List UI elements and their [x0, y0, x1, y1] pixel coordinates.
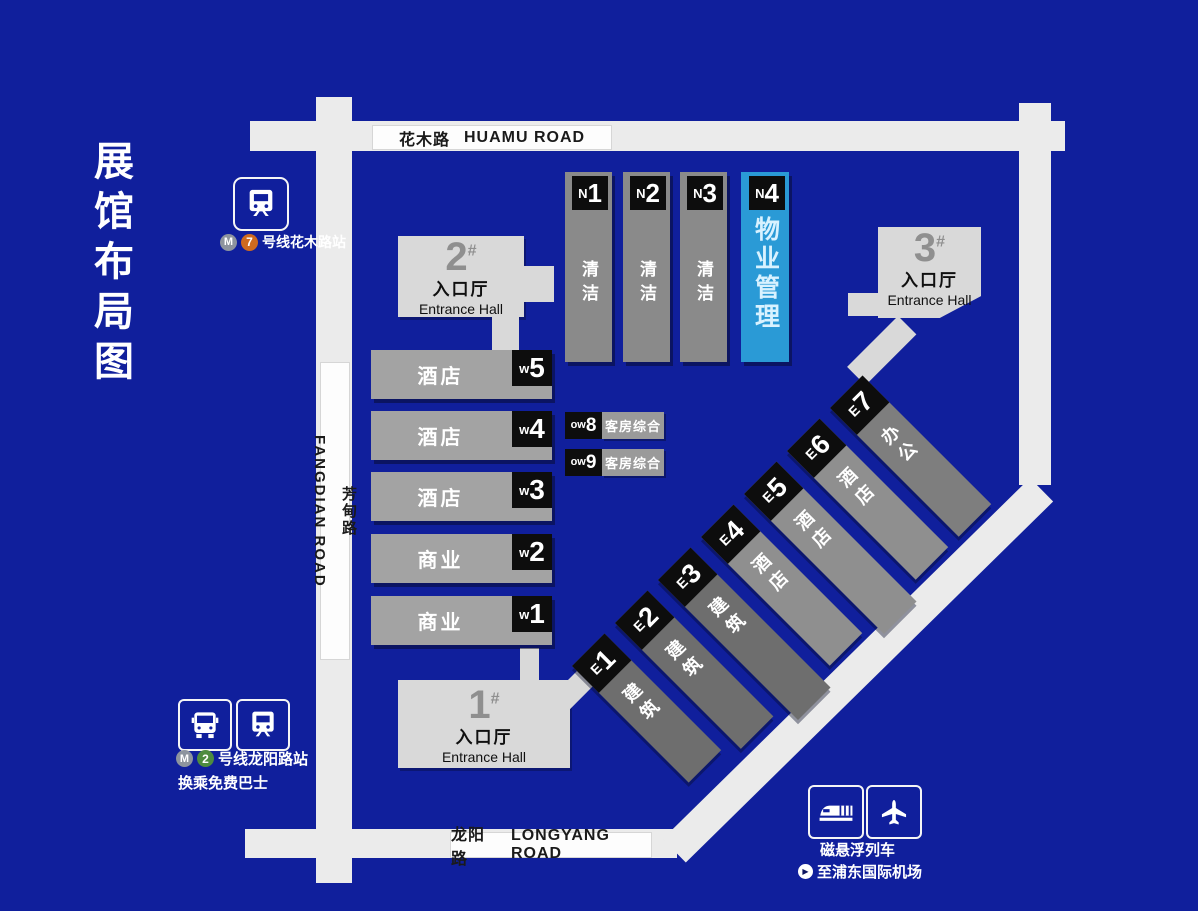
hall-w3-tag: w3	[512, 472, 552, 508]
maglev-destination-caption: ▶ 至浦东国际机场	[798, 861, 922, 882]
hall-w4-use: 酒店	[418, 421, 506, 450]
hall-w4: 酒店 w4	[371, 411, 552, 460]
hall-n4-highlighted: N4 物业管理	[741, 172, 789, 362]
entrance-3-number: 3#	[914, 231, 945, 265]
hall-n4-use: 物业管理	[753, 216, 778, 332]
line7-station-name: 号线花木路站	[262, 232, 346, 252]
entrance-2-zh: 入口厅	[433, 275, 490, 300]
train-icon-box	[236, 699, 290, 751]
exhibition-layout-map: 展馆布局图 花木路 HUAMU ROAD 芳甸路 FANGDIAN ROAD 龙…	[0, 0, 1198, 911]
hall-e1-use: 建筑	[619, 680, 666, 727]
airplane-icon-box	[866, 785, 922, 839]
hall-e2-use: 建筑	[662, 637, 709, 684]
entrance-hall-1-label: 1# 入口厅 Entrance Hall	[398, 688, 570, 765]
huamu-road-en: HUAMU ROAD	[464, 129, 585, 147]
hall-e4-use: 酒店	[748, 551, 795, 598]
hall-w2: 商业 w2	[371, 534, 552, 583]
hall-ow8-use: 客房综合	[602, 412, 664, 439]
metro-station-icon-box	[233, 177, 289, 231]
maglev-icon-box	[808, 785, 864, 839]
right-perimeter-road	[1019, 103, 1051, 485]
hall-n2: N2 清洁	[623, 172, 670, 362]
hall-e7-tag: E7	[830, 375, 889, 434]
hall-w5: 酒店 w5	[371, 350, 552, 399]
huamu-road-zh: 花木路	[399, 126, 450, 150]
bus-icon-box	[178, 699, 232, 751]
maglev-train-icon	[816, 797, 856, 827]
line7-badge: 7	[241, 234, 258, 251]
fangdian-road-label: 芳甸路 FANGDIAN ROAD	[320, 362, 350, 660]
hall-n1: N1 清洁	[565, 172, 612, 362]
entrance-2-en: Entrance Hall	[419, 301, 503, 317]
entrance-1-number: 1#	[468, 688, 499, 722]
entrance-2-number: 2#	[445, 240, 476, 274]
fangdian-road-en: FANGDIAN ROAD	[311, 435, 328, 588]
fangdian-road-zh: 芳甸路	[338, 486, 359, 537]
line2-badge: 2	[197, 750, 214, 767]
entrance-1-zh: 入口厅	[456, 723, 513, 748]
hall-n3-tag: N3	[687, 176, 723, 210]
hall-w1-use: 商业	[418, 606, 506, 635]
hall-w1-tag: w1	[512, 596, 552, 632]
shanghai-metro-logo-icon: M	[220, 234, 237, 251]
hall-n2-tag: N2	[630, 176, 666, 210]
free-shuttle-note: 换乘免费巴士	[178, 772, 268, 793]
hall-w5-tag: w5	[512, 350, 552, 386]
bus-icon	[189, 708, 221, 742]
line2-station-name: 号线龙阳路站	[218, 748, 308, 769]
longyang-road-en: LONGYANG ROAD	[511, 827, 651, 863]
hall-e7-use: 办公	[877, 422, 924, 469]
hall-n1-use: 清洁	[580, 260, 597, 308]
entrance-hall-3-arm	[848, 293, 878, 316]
line7-station-caption: M 7 号线花木路站	[220, 232, 346, 252]
hall-e3-use: 建筑	[705, 594, 752, 641]
hall-e2-tag: E2	[615, 590, 674, 649]
hall-ow8-tag: ow8	[565, 412, 602, 439]
hall-w4-tag: w4	[512, 411, 552, 447]
shanghai-metro-logo-icon: M	[176, 750, 193, 767]
entrance-hall-3-stem	[847, 316, 916, 385]
hall-ow9-use: 客房综合	[602, 449, 664, 476]
entrance-hall-2-arm	[524, 266, 554, 302]
hall-n3: N3 清洁	[680, 172, 727, 362]
hall-e6-tag: E6	[787, 418, 846, 477]
hall-n1-tag: N1	[572, 176, 608, 210]
hall-w2-tag: w2	[512, 534, 552, 570]
hall-n4-tag: N4	[749, 176, 785, 210]
huamu-road-label: 花木路 HUAMU ROAD	[372, 125, 612, 150]
entrance-3-zh: 入口厅	[901, 266, 958, 291]
hall-n3-use: 清洁	[695, 260, 712, 308]
hall-e3-tag: E3	[658, 547, 717, 606]
metro-train-icon	[244, 187, 278, 221]
entrance-hall-1-top-stem	[520, 648, 539, 682]
longyang-road-label: 龙阳路 LONGYANG ROAD	[450, 832, 652, 858]
maglev-caption: 磁悬浮列车	[820, 839, 895, 860]
hall-e6-use: 酒店	[834, 465, 881, 512]
entrance-hall-3-label: 3# 入口厅 Entrance Hall	[878, 231, 981, 308]
entrance-hall-2-label: 2# 入口厅 Entrance Hall	[398, 240, 524, 317]
hall-w3-use: 酒店	[418, 482, 506, 511]
entrance-1-en: Entrance Hall	[442, 749, 526, 765]
entrance-hall-2-stem	[492, 315, 519, 352]
hall-w1: 商业 w1	[371, 596, 552, 645]
airplane-icon	[878, 797, 910, 827]
hall-w2-use: 商业	[418, 544, 506, 573]
page-title: 展馆布局图	[90, 140, 130, 390]
hall-e5-use: 酒店	[791, 508, 838, 555]
metro-train-icon	[247, 708, 279, 742]
hall-e5-tag: E5	[744, 461, 803, 520]
hall-w3: 酒店 w3	[371, 472, 552, 521]
maglev-destination: 至浦东国际机场	[817, 861, 922, 882]
hall-w5-use: 酒店	[418, 360, 506, 389]
play-arrow-icon: ▶	[798, 864, 813, 879]
longyang-road-zh: 龙阳路	[451, 821, 497, 869]
hall-ow9-tag: ow9	[565, 449, 602, 476]
entrance-3-en: Entrance Hall	[887, 292, 971, 308]
line2-station-caption: M 2 号线龙阳路站	[176, 748, 308, 769]
hall-n2-use: 清洁	[638, 260, 655, 308]
hall-e4-tag: E4	[701, 504, 760, 563]
